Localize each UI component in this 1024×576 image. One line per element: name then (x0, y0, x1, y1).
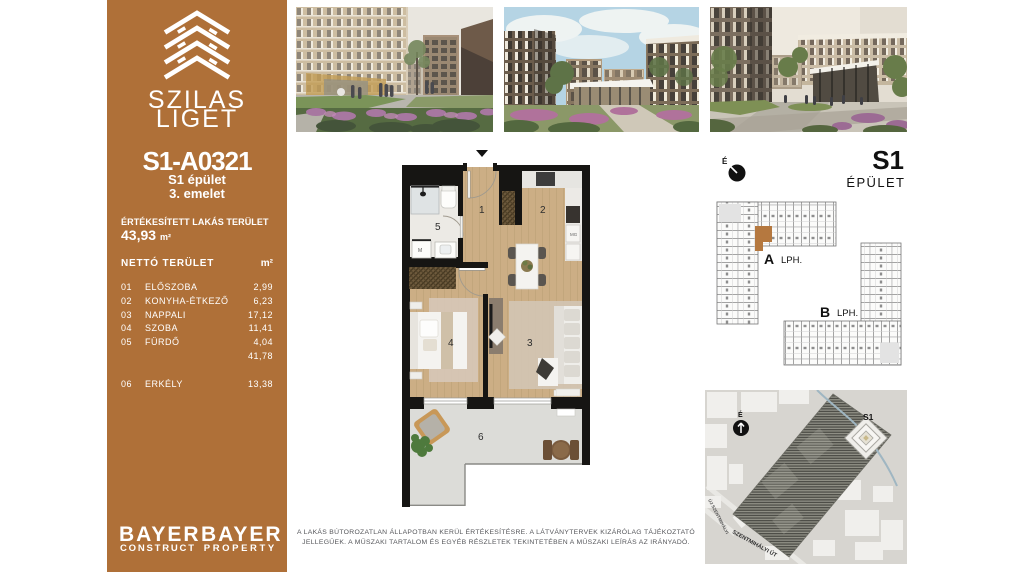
svg-text:LPH.: LPH. (781, 255, 802, 266)
svg-text:B: B (820, 304, 830, 320)
svg-text:S1: S1 (863, 412, 874, 422)
svg-text:M: M (418, 248, 422, 254)
svg-text:3: 3 (527, 338, 533, 349)
svg-text:É: É (738, 410, 743, 419)
svg-text:5: 5 (435, 222, 441, 233)
svg-text:2: 2 (540, 205, 546, 216)
svg-text:1: 1 (479, 205, 485, 216)
svg-text:LPH.: LPH. (837, 308, 858, 319)
svg-text:É: É (722, 157, 728, 166)
svg-text:MG: MG (570, 232, 578, 237)
svg-text:6: 6 (478, 432, 484, 443)
svg-text:4: 4 (448, 338, 454, 349)
svg-text:A: A (764, 251, 774, 267)
